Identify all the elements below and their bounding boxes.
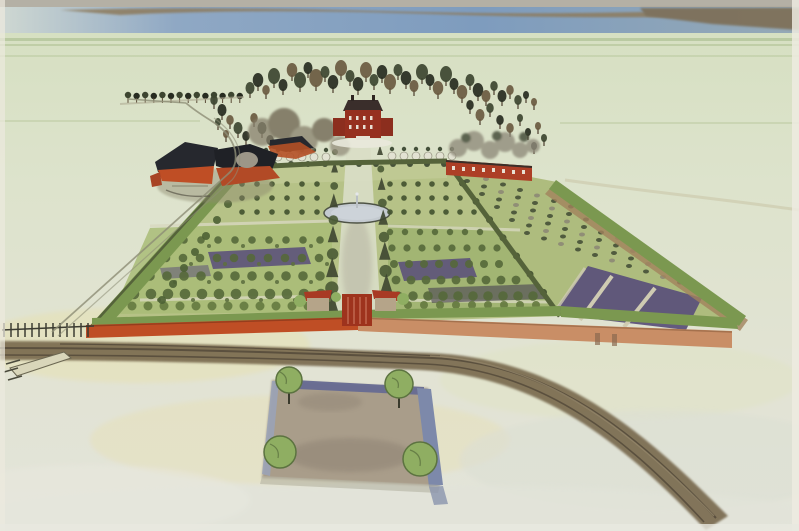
gate-shrub <box>397 293 409 305</box>
tree-icon <box>218 104 227 116</box>
tree-icon <box>471 209 477 215</box>
tree-icon <box>169 280 177 288</box>
tree-icon <box>142 92 148 98</box>
tree-icon <box>247 254 256 263</box>
tree-icon <box>179 271 189 281</box>
crop-row-dot <box>562 227 568 231</box>
crop-row-dot <box>611 251 617 255</box>
tree-icon <box>401 209 407 215</box>
tree-icon <box>420 260 428 268</box>
tree-icon <box>223 262 227 266</box>
forecourt <box>260 367 448 505</box>
crop-row-dot <box>532 201 538 205</box>
tree-icon <box>192 302 201 311</box>
crop-row-dot <box>526 224 532 228</box>
tree-icon <box>162 271 172 281</box>
painting-canvas <box>0 0 799 531</box>
tree-icon <box>275 280 279 284</box>
tree-icon <box>384 74 396 90</box>
crop-row-dot <box>479 192 485 196</box>
tree-icon <box>387 181 393 187</box>
tree-icon <box>299 181 305 187</box>
tree-icon <box>231 236 239 244</box>
tree-icon <box>353 77 364 91</box>
tree-icon <box>246 82 255 94</box>
wall-pier <box>612 334 617 346</box>
tree-icon <box>265 236 273 244</box>
tree-icon <box>269 195 275 201</box>
tree-icon <box>213 271 223 281</box>
tree-icon <box>457 195 463 201</box>
tree-icon <box>281 254 290 263</box>
tree-icon <box>387 229 393 235</box>
gate-shrub <box>294 295 306 307</box>
crop-row-dot <box>643 270 649 274</box>
crop-row-dot <box>549 207 555 211</box>
tree-icon <box>429 181 435 187</box>
lodge-left-body <box>307 298 329 311</box>
jet-spray <box>355 192 358 195</box>
forecourt-shadow <box>298 393 362 411</box>
tree-icon <box>315 271 325 281</box>
crop-row-dot <box>517 188 523 192</box>
tree-icon <box>498 90 507 102</box>
tree-icon <box>316 236 324 244</box>
tree-icon <box>535 122 541 130</box>
tree-icon <box>144 302 153 311</box>
tree-icon <box>401 181 407 187</box>
tree-icon <box>443 181 449 187</box>
tree-icon <box>309 244 313 248</box>
tree-icon <box>299 236 307 244</box>
tree-icon <box>467 276 476 285</box>
crop-row-dot <box>524 231 530 235</box>
crop-row-dot <box>530 209 536 213</box>
crop-row-dot <box>628 257 634 261</box>
tree-icon <box>224 302 233 311</box>
tree-icon <box>437 276 446 285</box>
tree-icon <box>284 181 290 187</box>
tree-icon <box>433 81 444 95</box>
tree-icon <box>264 271 274 281</box>
tree-icon <box>408 291 418 301</box>
crop-row-dot <box>498 190 504 194</box>
tree-icon <box>189 262 193 266</box>
crop-row-dot <box>577 240 583 244</box>
tree-icon <box>241 280 245 284</box>
tree-icon <box>230 254 239 263</box>
tree-icon <box>465 260 473 268</box>
crop-row-dot <box>481 185 487 189</box>
gate-block <box>342 294 372 326</box>
tree-icon <box>213 254 222 263</box>
tree-icon <box>328 75 339 89</box>
tree-icon <box>225 298 229 302</box>
tree-icon <box>284 209 290 215</box>
tree-icon <box>257 262 261 266</box>
tree-icon <box>176 302 185 311</box>
tree-icon <box>265 289 276 300</box>
tree-icon <box>482 90 491 102</box>
tree-icon <box>194 92 200 98</box>
top-paper-strip <box>0 0 799 8</box>
crop-row-dot <box>566 212 572 216</box>
tree-icon <box>179 254 188 263</box>
tree-icon <box>329 215 339 225</box>
tree-icon <box>432 229 438 235</box>
tree-icon <box>506 123 514 133</box>
crop-row-dot <box>558 242 564 246</box>
crop-row-dot <box>509 218 515 222</box>
corner-tree <box>385 370 413 398</box>
tree-icon <box>418 244 425 251</box>
tree-icon <box>426 74 435 86</box>
tree-icon <box>207 280 211 284</box>
trellis-arch-icon <box>388 152 396 160</box>
tree-icon <box>309 280 313 284</box>
crop-row-dot <box>494 205 500 209</box>
tree-icon <box>498 291 508 301</box>
tree-icon <box>429 209 435 215</box>
crop-row-dot <box>545 222 551 226</box>
tree-icon <box>414 147 418 151</box>
tree-icon <box>438 147 442 151</box>
tree-icon <box>482 276 491 285</box>
tree-icon <box>401 71 412 85</box>
crop-row-dot <box>534 194 540 198</box>
tree-icon <box>517 114 523 122</box>
tree-icon <box>231 289 242 300</box>
tree-icon <box>315 254 324 263</box>
tree-icon <box>214 236 222 244</box>
tree-icon <box>248 236 256 244</box>
tree-icon <box>256 302 265 311</box>
tree-icon <box>415 209 421 215</box>
crop-row-dot <box>515 196 521 200</box>
tree-icon <box>410 80 419 92</box>
tree-icon <box>269 209 275 215</box>
tree-icon <box>388 244 395 251</box>
tree-icon <box>180 289 191 300</box>
crop-row-dot <box>496 198 502 202</box>
tree-icon <box>234 122 243 134</box>
tree-icon <box>230 271 240 281</box>
tree-icon <box>415 195 421 201</box>
tree-icon <box>390 147 394 151</box>
tree-icon <box>531 98 537 106</box>
tree-icon <box>468 291 478 301</box>
tree-icon <box>403 244 410 251</box>
forecourt-shadow <box>288 438 412 472</box>
gate-shrub <box>331 292 341 302</box>
tree-icon <box>457 209 463 215</box>
tree-icon <box>407 276 416 285</box>
tree-icon <box>324 148 328 152</box>
tree-icon <box>450 78 459 90</box>
tree-icon <box>379 265 391 277</box>
wall-pier <box>595 333 600 345</box>
tree-icon <box>453 291 463 301</box>
tree-icon <box>463 244 470 251</box>
tree-icon <box>241 244 245 248</box>
tree-icon <box>497 276 506 285</box>
tree-icon <box>478 244 485 251</box>
tree-icon <box>477 229 483 235</box>
mansion-block <box>345 110 381 138</box>
tree-icon <box>486 103 494 113</box>
tree-icon <box>208 302 217 311</box>
tree-icon <box>495 260 503 268</box>
tree-icon <box>210 95 218 105</box>
tree-icon <box>483 291 493 301</box>
paper-edge-bottom <box>0 524 799 531</box>
tree-icon <box>239 209 245 215</box>
chimney <box>351 95 354 101</box>
tree-icon <box>402 229 408 235</box>
tree-icon <box>452 276 461 285</box>
tree-icon <box>253 73 264 87</box>
crop-row-dot <box>511 211 517 215</box>
crop-row-dot <box>564 220 570 224</box>
tree-icon <box>291 262 295 266</box>
orangery-smoke-trees <box>449 131 540 159</box>
tree-icon <box>281 271 291 281</box>
crop-row-dot <box>575 248 581 252</box>
tree-icon <box>284 195 290 201</box>
paper-edge-right <box>792 0 799 531</box>
tree-icon <box>466 100 474 110</box>
tree-icon <box>435 260 443 268</box>
tree-icon <box>402 147 406 151</box>
tree-icon <box>423 291 433 301</box>
tree-icon <box>191 298 195 302</box>
crop-row-dot <box>592 253 598 257</box>
corner-tree <box>276 367 302 393</box>
tree-icon <box>506 85 514 95</box>
tree-icon <box>346 70 355 82</box>
tree-icon <box>387 195 393 201</box>
tree-icon <box>493 244 500 251</box>
tree-icon <box>512 276 521 285</box>
crop-row-dot <box>626 264 632 268</box>
tree-icon <box>457 85 468 99</box>
tree-icon <box>272 302 281 311</box>
tree-icon <box>159 92 165 98</box>
tree-icon <box>405 260 413 268</box>
tree-icon <box>298 254 307 263</box>
tree-icon <box>254 209 260 215</box>
tree-icon <box>180 264 188 272</box>
tree-icon <box>325 262 329 266</box>
crop-row-dot <box>581 225 587 229</box>
tree-icon <box>443 209 449 215</box>
crop-row-dot <box>596 238 602 242</box>
tree-icon <box>429 195 435 201</box>
mansion-roof <box>343 100 383 111</box>
tree-icon <box>420 301 428 309</box>
tree-icon <box>440 66 452 82</box>
crop-row-dot <box>579 233 585 237</box>
tree-icon <box>207 244 211 248</box>
tree-icon <box>279 79 288 91</box>
tree-icon <box>422 276 431 285</box>
tree-icon <box>452 301 460 309</box>
tree-icon <box>528 291 538 301</box>
tree-icon <box>447 229 453 235</box>
tree-icon <box>176 92 182 98</box>
tree-icon <box>466 74 475 86</box>
tree-icon <box>330 182 338 190</box>
mansion-wing-right <box>381 118 393 136</box>
tree-icon <box>262 85 270 95</box>
fountain-water <box>331 206 383 220</box>
tree-icon <box>213 216 221 224</box>
tree-icon <box>259 298 263 302</box>
tree-icon <box>415 181 421 187</box>
crop-row-dot <box>560 235 566 239</box>
trellis-arch-icon <box>400 152 408 160</box>
tree-icon <box>417 229 423 235</box>
tree-icon <box>514 95 522 105</box>
tree-icon <box>360 62 372 78</box>
tree-icon <box>247 271 257 281</box>
tree-icon <box>282 236 290 244</box>
tree-icon <box>513 291 523 301</box>
tree-icon <box>191 248 199 256</box>
trellis-arch-icon <box>310 153 318 161</box>
tree-icon <box>264 254 273 263</box>
crop-row-dot <box>528 216 534 220</box>
tree-icon <box>125 92 131 98</box>
tree-icon <box>158 296 166 304</box>
tree-icon <box>299 195 305 201</box>
tree-icon <box>299 209 305 215</box>
tree-icon <box>335 60 347 76</box>
tree-icon <box>443 195 449 201</box>
crop-row-dot <box>594 246 600 250</box>
tree-icon <box>146 289 157 300</box>
tree-icon <box>377 166 384 173</box>
lodge-right-body <box>375 298 396 311</box>
tree-icon <box>541 134 547 142</box>
tree-icon <box>275 244 279 248</box>
tree-icon <box>523 91 529 99</box>
tree-icon <box>248 289 259 300</box>
tree-icon <box>390 260 398 268</box>
mansion-steps <box>356 136 370 140</box>
tree-icon <box>401 195 407 201</box>
chimney <box>372 95 375 101</box>
tree-icon <box>480 260 488 268</box>
tree-icon <box>314 209 320 215</box>
tree-icon <box>436 301 444 309</box>
tree-icon <box>294 72 306 88</box>
crop-row-dot <box>543 229 549 233</box>
tree-icon <box>496 115 504 125</box>
tree-icon <box>433 244 440 251</box>
tree-icon <box>378 199 387 208</box>
tree-icon <box>448 244 455 251</box>
tree-icon <box>392 276 401 285</box>
tree-icon <box>327 248 338 259</box>
tree-icon <box>387 209 393 215</box>
tree-icon <box>240 302 249 311</box>
tree-icon <box>314 195 320 201</box>
estate-illustration <box>0 0 799 531</box>
crop-row-dot <box>541 237 547 241</box>
crop-row-dot <box>513 203 519 207</box>
tree-icon <box>214 289 225 300</box>
tree-icon <box>476 109 485 121</box>
tree-icon <box>226 115 234 125</box>
tree-icon <box>450 260 458 268</box>
crop-row-dot <box>547 214 553 218</box>
corner-tree <box>264 436 296 468</box>
tree-icon <box>268 68 280 84</box>
trellis-arch-icon <box>322 153 330 161</box>
tree-icon <box>202 232 210 240</box>
tree-icon <box>314 181 320 187</box>
tree-icon <box>282 289 293 300</box>
crop-row-dot <box>500 183 506 187</box>
paper-edge-left <box>0 0 5 531</box>
mansion-wing-left <box>333 118 345 136</box>
tree-icon <box>490 81 498 91</box>
tree-icon <box>370 74 379 86</box>
tree-icon <box>426 147 430 151</box>
tree-icon <box>321 66 330 78</box>
tree-icon <box>462 229 468 235</box>
tree-icon <box>394 64 403 76</box>
tree-icon <box>438 291 448 301</box>
crop-row-dot <box>609 259 615 263</box>
trellis-arch-icon <box>412 152 420 160</box>
tree-icon <box>298 271 308 281</box>
tree-icon <box>197 289 208 300</box>
tree-icon <box>196 271 206 281</box>
